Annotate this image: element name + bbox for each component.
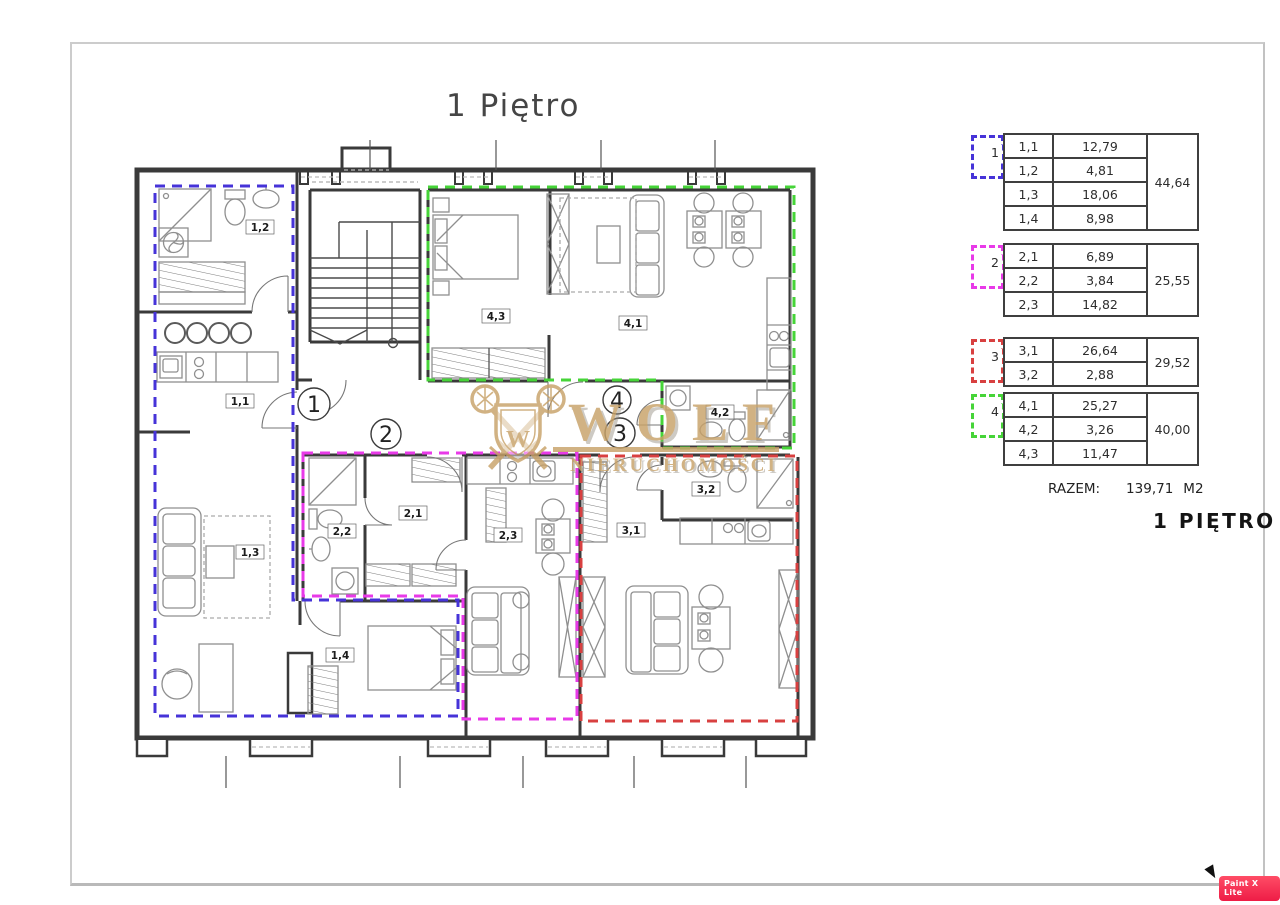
room-label: 1,4 [331,650,350,662]
watermark-monogram: W [506,427,530,453]
total-value: 139,71 [1126,481,1173,497]
room-label: 2,2 [333,526,352,538]
watermark-name: WOLF [568,392,789,452]
app-canvas: 1 Piętro [0,0,1280,905]
paint-x-lite-badge: Paint X Lite [1219,876,1280,901]
apartment-2-number: 2 [988,255,1002,270]
staircase [310,182,420,348]
apartment-4-total: 40,00 [1147,393,1198,465]
total-label: RAZEM: [1048,481,1100,497]
apartment-3-number: 3 [988,349,1002,364]
apartment-2-total: 25,55 [1147,244,1198,316]
room-label: 4,1 [624,318,643,330]
apartment-1-total: 44,64 [1147,134,1198,230]
room-label: 3,2 [697,484,716,496]
table-row: 1,112,7944,64 [1004,134,1198,158]
room-label: 1,2 [251,222,270,234]
area-group-1: 1 1,112,7944,64 1,24,81 1,318,06 1,48,98 [971,133,1199,231]
apartment-1-table: 1,112,7944,64 1,24,81 1,318,06 1,48,98 [1003,133,1199,231]
total-unit: M2 [1183,481,1203,497]
table-row: 3,126,6429,52 [1004,338,1198,362]
apartment-4-number: 4 [988,404,1002,419]
total-area-row: RAZEM: 139,71 M2 [1048,481,1204,497]
room-label: 2,1 [404,508,423,520]
floor-caption: 1 PIĘTRO [1153,509,1276,533]
room-label: 4,3 [487,311,506,323]
apartment-3-table: 3,126,6429,52 3,22,88 [1003,337,1199,387]
apartment-4-table: 4,125,2740,00 4,23,26 4,311,47 [1003,392,1199,466]
watermark: W WOLF WOLF NIERUCHOMOŚCI NIERUCHOMOŚCI [472,386,792,478]
room-label: 1,1 [231,396,250,408]
room-label: 3,1 [622,525,641,537]
apartment-2-table: 2,16,8925,55 2,23,84 2,314,82 [1003,243,1199,317]
apartment-3-outline [581,456,797,721]
area-group-3: 3 3,126,6429,52 3,22,88 [971,337,1199,387]
marker-2: 2 [379,423,393,448]
room-label: 2,3 [499,530,518,542]
watermark-underline [553,447,779,452]
apartment-1-number: 1 [988,145,1002,160]
table-row: 4,125,2740,00 [1004,393,1198,417]
marker-1: 1 [307,393,321,418]
table-row: 2,16,8925,55 [1004,244,1198,268]
watermark-subtitle: NIERUCHOMOŚCI [570,454,778,476]
area-group-2: 2 2,16,8925,55 2,23,84 2,314,82 [971,243,1199,317]
apartment-3-total: 29,52 [1147,338,1198,386]
room-label: 1,3 [241,547,260,559]
area-group-4: 4 4,125,2740,00 4,23,26 4,311,47 [971,392,1199,466]
